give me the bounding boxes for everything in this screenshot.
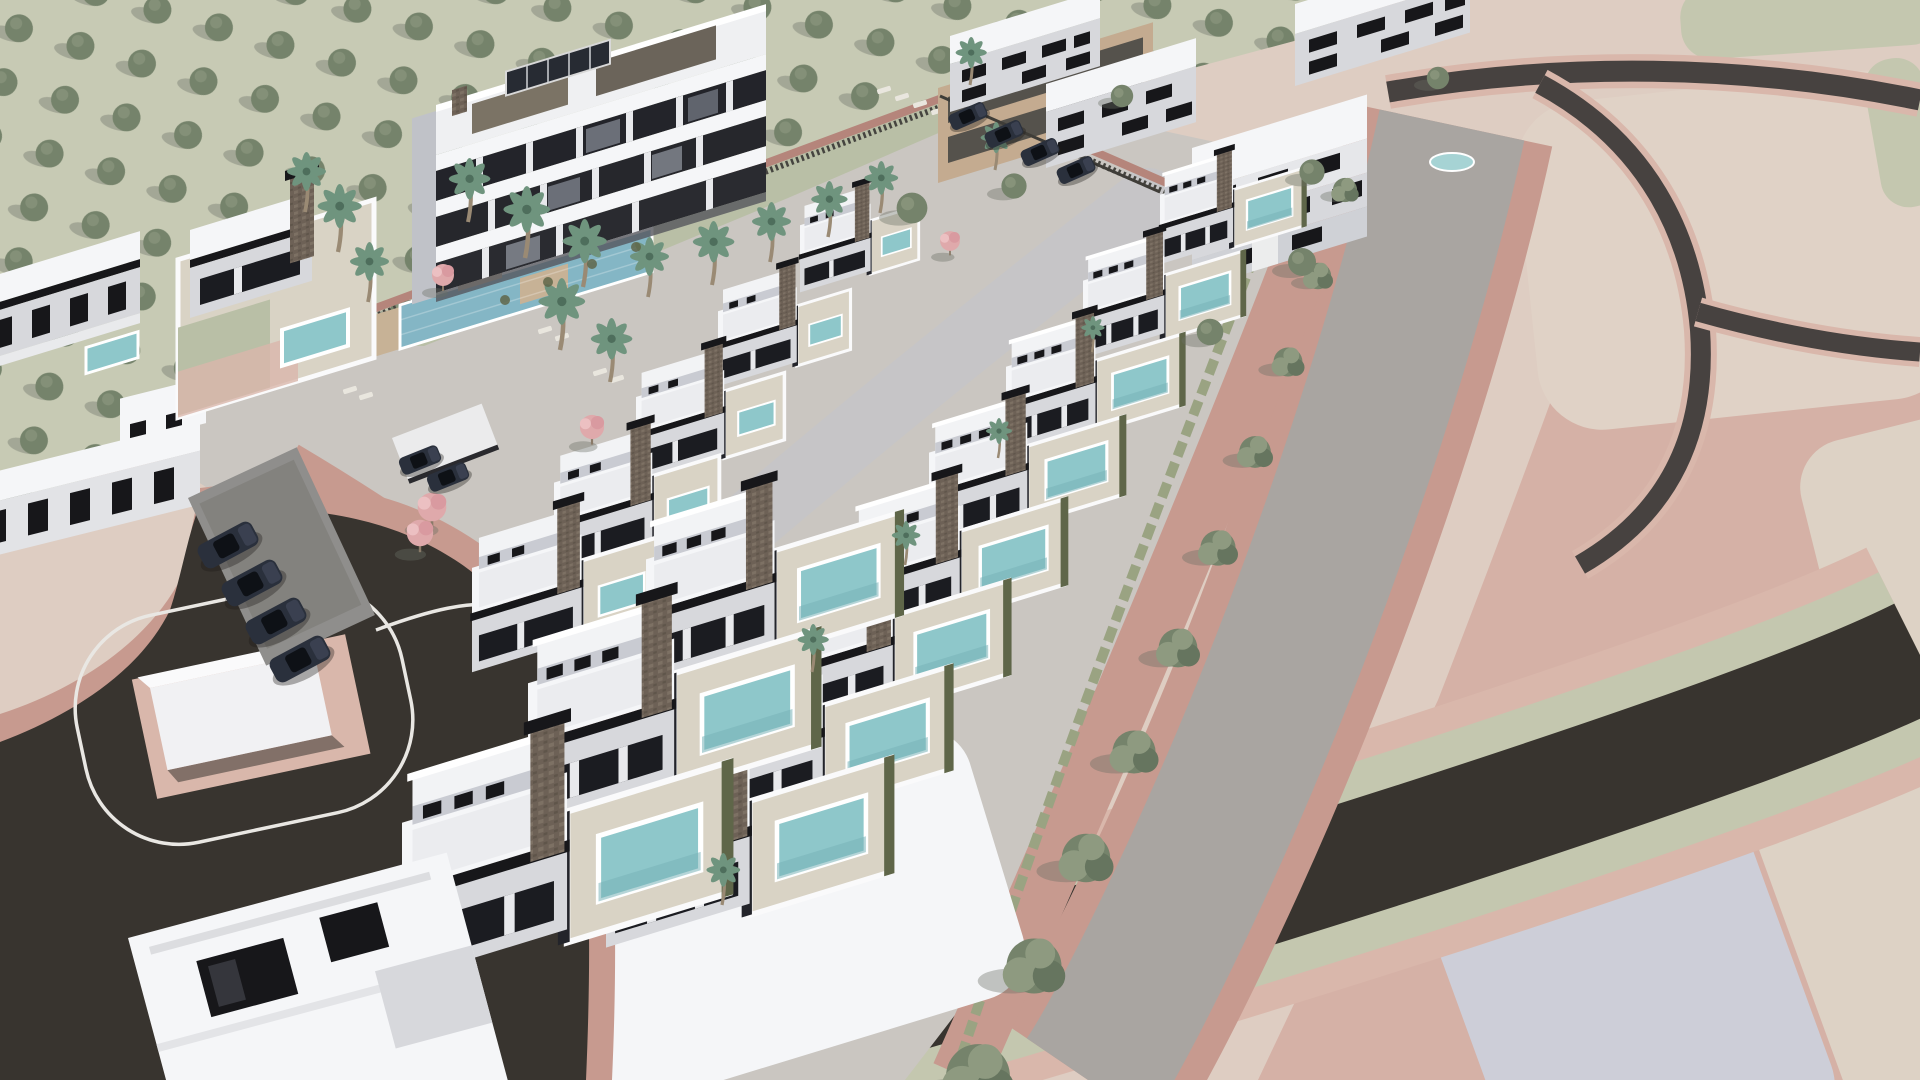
small-pool [1430, 153, 1474, 171]
shrub [587, 259, 597, 269]
aerial-render: Aerial 3D architectural rendering — Medi… [0, 0, 1920, 1080]
shrub [500, 295, 510, 305]
shrub [543, 277, 553, 287]
chimney [452, 86, 467, 117]
shrub [631, 242, 641, 252]
